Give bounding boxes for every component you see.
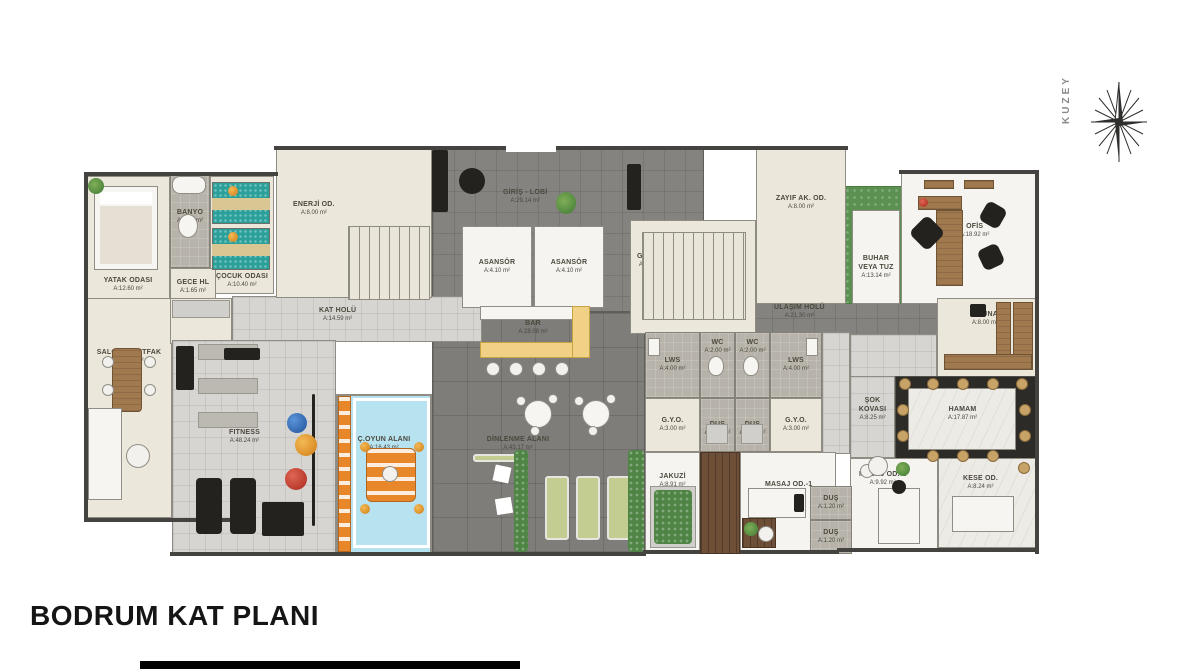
- room-name: LWS: [659, 357, 685, 366]
- masaj2-plant: [896, 462, 910, 476]
- squat-machine: [262, 502, 304, 536]
- room-name: KAT HOLÜ: [319, 307, 356, 316]
- corridor-hamam: [850, 334, 937, 378]
- toilet-wc-2: [743, 356, 759, 376]
- room-name: BAR: [518, 320, 547, 329]
- kid-bed-1-pillow: [228, 186, 238, 196]
- lobby-pillar-2: [627, 164, 641, 210]
- chair-1: [102, 356, 114, 368]
- wall-top-right: [899, 170, 1039, 174]
- gym-ball-blue: [287, 413, 307, 433]
- table-chair-5: [606, 394, 616, 404]
- room-area: A:4.10 m²: [479, 268, 515, 276]
- bottom-bar: [140, 661, 520, 669]
- gym-mat-3: [198, 412, 258, 428]
- compass: KUZEY: [1048, 56, 1158, 176]
- room-name: OFİS: [960, 223, 989, 232]
- gym-ball-orange: [295, 434, 317, 456]
- asansor-2: ASANSÖRA:4.10 m²: [534, 226, 604, 308]
- room-area: A:21.30 m²: [774, 313, 825, 321]
- room-area: A:12.60 m²: [87, 286, 169, 294]
- hamam: HAMAMA:17.87 m²: [915, 394, 1010, 434]
- kid-bed-2-blanket: [212, 244, 270, 256]
- wall-top-center: [274, 146, 848, 150]
- bar-counter-v: [572, 306, 590, 358]
- room-name: FITNESS: [229, 429, 260, 438]
- wall-right: [1035, 170, 1039, 554]
- compass-north-label: KUZEY: [1061, 75, 1072, 124]
- kid-bed-2-pillow: [228, 232, 238, 242]
- room-area: A:10.40 m²: [211, 282, 273, 290]
- play-chair-3: [360, 504, 370, 514]
- lounger-2: [576, 476, 600, 540]
- corridor-wc: [822, 332, 850, 454]
- kat-holu: KAT HOLÜA:14.59 m²: [232, 296, 482, 342]
- room-name: DİNLENME ALANI: [487, 436, 549, 445]
- barbell-rack: [312, 394, 315, 526]
- dining-table: [112, 348, 142, 412]
- room-area: A:3.00 m²: [659, 426, 685, 434]
- room-name: G.Y.O.: [659, 417, 685, 426]
- stairs-gvn: [642, 232, 746, 320]
- office-shelf-2: [964, 180, 994, 189]
- room-name: ULAŞIM HOLÜ: [774, 304, 825, 313]
- round-table-1: [524, 400, 552, 428]
- room-area: A:17.87 m²: [948, 415, 977, 423]
- compass-star-icon: [1088, 80, 1150, 164]
- room-area: A:13.14 m²: [853, 273, 899, 281]
- entrance-door-gap: [506, 146, 556, 152]
- lounger-1: [545, 476, 569, 540]
- bar-stool-4: [555, 362, 569, 376]
- room-name: ŞOK KOVASI: [851, 397, 894, 415]
- wood-deck: [700, 452, 740, 554]
- room-area: A:2.00 m²: [736, 348, 769, 356]
- floor-plan: GİRİŞ - LOBİA:29.14 m²ULAŞIM HOLÜA:21.30…: [0, 0, 1200, 669]
- room-area: A:8.24 m²: [963, 484, 998, 492]
- gym-ball-red: [285, 468, 307, 490]
- play-shelf: [338, 396, 351, 552]
- bar-stool-3: [532, 362, 546, 376]
- gym-machine-1: [176, 346, 194, 390]
- armchair: [126, 444, 150, 468]
- room-name: BUHAR VEYA TUZ: [853, 255, 899, 273]
- kitchen-counter: [172, 300, 230, 318]
- hamam-gold-8: [1019, 404, 1031, 416]
- treadmill-2: [230, 478, 256, 534]
- room-area: A:48.24 m²: [229, 438, 260, 446]
- asansor-1: ASANSÖRA:4.10 m²: [462, 226, 532, 308]
- hamam-gold-9: [1019, 430, 1031, 442]
- round-table-2: [582, 400, 610, 428]
- massage-table-1-head: [794, 494, 804, 512]
- hamam-gold-3: [957, 378, 969, 390]
- room-name: ZAYIF AK. OD.: [757, 195, 845, 204]
- chair-3: [144, 356, 156, 368]
- wall-bottom-fitness: [170, 552, 434, 556]
- masaj1-plant: [744, 522, 758, 536]
- wall-bottom-mid: [643, 550, 839, 554]
- table-chair-4: [574, 396, 584, 406]
- bathtub: [172, 176, 206, 194]
- room-name: WC: [736, 339, 769, 348]
- hamam-gold-4: [987, 378, 999, 390]
- bedroom-plant: [88, 178, 104, 194]
- page-title: BODRUM KAT PLANI: [30, 600, 319, 632]
- massage-table-2: [878, 488, 920, 544]
- gym-machine-2: [224, 348, 260, 360]
- hamam-gold-5: [1016, 378, 1028, 390]
- bar-stool-1: [486, 362, 500, 376]
- office-shelf-1: [924, 180, 954, 189]
- toilet-banyo: [178, 214, 198, 238]
- room-name: WC: [701, 339, 734, 348]
- chair-4: [144, 384, 156, 396]
- room-area: A:8.00 m²: [972, 320, 998, 328]
- masaj2-clock: [868, 456, 888, 476]
- sofa: [88, 408, 122, 500]
- room-area: A:18.92 m²: [960, 232, 989, 240]
- room-area: A:4.00 m²: [783, 366, 809, 374]
- toilet-wc-1: [708, 356, 724, 376]
- room-name: ÇOCUK ODASI: [211, 273, 273, 282]
- jacuzzi-water: [654, 490, 692, 544]
- room-name: KESE OD.: [963, 475, 998, 484]
- treadmill-1: [196, 478, 222, 534]
- sink-lws-2: [806, 338, 818, 356]
- planter-1: [514, 450, 528, 552]
- wall-bottom-dinlenme: [432, 552, 646, 556]
- room-name: GİRİŞ - LOBİ: [503, 189, 547, 198]
- lobby-column: [459, 168, 485, 194]
- wall-bottom-right: [837, 548, 1039, 552]
- table-chair-6: [588, 426, 598, 436]
- room-area: A:8.00 m²: [757, 204, 845, 212]
- sauna-bench-bottom: [944, 354, 1032, 370]
- sink-lws-1: [648, 338, 660, 356]
- bar-stool-2: [509, 362, 523, 376]
- room-area: A:8.25 m²: [851, 415, 894, 423]
- room-area: A:1.20 m²: [818, 538, 844, 546]
- play-table-center: [382, 466, 398, 482]
- stairs-enerji: [348, 226, 430, 300]
- bar-back-counter: [480, 306, 586, 320]
- dus-3: DUŞA:1.20 m²: [810, 486, 852, 520]
- hamam-gold-7: [897, 430, 909, 442]
- hamam-gold-11: [957, 450, 969, 462]
- masaj1-stool: [758, 526, 774, 542]
- table-chair-1: [516, 396, 526, 406]
- play-chair-4: [414, 504, 424, 514]
- massage-table-2-head: [892, 480, 906, 494]
- room-name: GECE HL: [171, 279, 215, 288]
- room-area: A:1.20 m²: [818, 504, 844, 512]
- hamam-gold-10: [927, 450, 939, 462]
- room-name: HAMAM: [948, 406, 977, 415]
- mat-white-1: [493, 465, 512, 484]
- buhar-veya-tuz: BUHAR VEYA TUZA:13.14 m²: [852, 210, 900, 304]
- room-name: JAKUZİ: [646, 473, 699, 482]
- table-chair-2: [548, 394, 558, 404]
- room-area: A:4.10 m²: [551, 268, 587, 276]
- room-name: YATAK ODASI: [87, 277, 169, 286]
- zayif-ak-od: ZAYIF AK. OD.A:8.00 m²: [756, 148, 846, 304]
- office-red-item: [919, 198, 928, 207]
- room-area: A:2.00 m²: [701, 348, 734, 356]
- bed-pillow: [100, 192, 152, 204]
- mat-white-2: [495, 497, 513, 515]
- hamam-gold-2: [927, 378, 939, 390]
- gyo-2: G.Y.O.A:3.00 m²: [770, 398, 822, 452]
- room-area: A:14.59 m²: [319, 316, 356, 324]
- lobby-pillar-1: [432, 150, 448, 212]
- room-area: A:8.00 m²: [293, 210, 335, 218]
- play-chair-1: [360, 442, 370, 452]
- bed-mattress: [100, 206, 152, 264]
- bar: BARA:28.08 m²: [498, 318, 568, 338]
- gym-mat-2: [198, 378, 258, 394]
- hamam-gold-12: [987, 450, 999, 462]
- room-area: A:28.08 m²: [518, 329, 547, 337]
- hamam-gold-1: [899, 378, 911, 390]
- room-name: ASANSÖR: [479, 259, 515, 268]
- shower-tray-1: [706, 424, 728, 444]
- play-chair-2: [414, 442, 424, 452]
- sok-kovasi: ŞOK KOVASIA:8.25 m²: [850, 376, 895, 458]
- hamam-gold-6: [897, 404, 909, 416]
- room-name: G.Y.O.: [783, 417, 809, 426]
- room-area: A:1.65 m²: [171, 288, 215, 296]
- room-name: ASANSÖR: [551, 259, 587, 268]
- kese-gold: [1018, 462, 1030, 474]
- room-area: A:4.00 m²: [659, 366, 685, 374]
- kid-bed-1-blanket: [212, 198, 270, 210]
- lobby-plant: [556, 192, 576, 214]
- sauna-heater: [970, 304, 986, 317]
- room-name: DUŞ: [818, 529, 844, 538]
- chair-2: [102, 384, 114, 396]
- room-name: ENERJİ OD.: [293, 201, 335, 210]
- shower-tray-2: [741, 424, 763, 444]
- gyo-1: G.Y.O.A:3.00 m²: [645, 398, 700, 452]
- room-area: A:29.14 m²: [503, 198, 547, 206]
- room-name: DUŞ: [818, 495, 844, 504]
- table-chair-3: [530, 426, 540, 436]
- room-name: LWS: [783, 357, 809, 366]
- office-desk-v: [936, 210, 963, 286]
- planter-2: [628, 450, 644, 552]
- kese-slab: [952, 496, 1014, 532]
- room-area: A:3.00 m²: [783, 426, 809, 434]
